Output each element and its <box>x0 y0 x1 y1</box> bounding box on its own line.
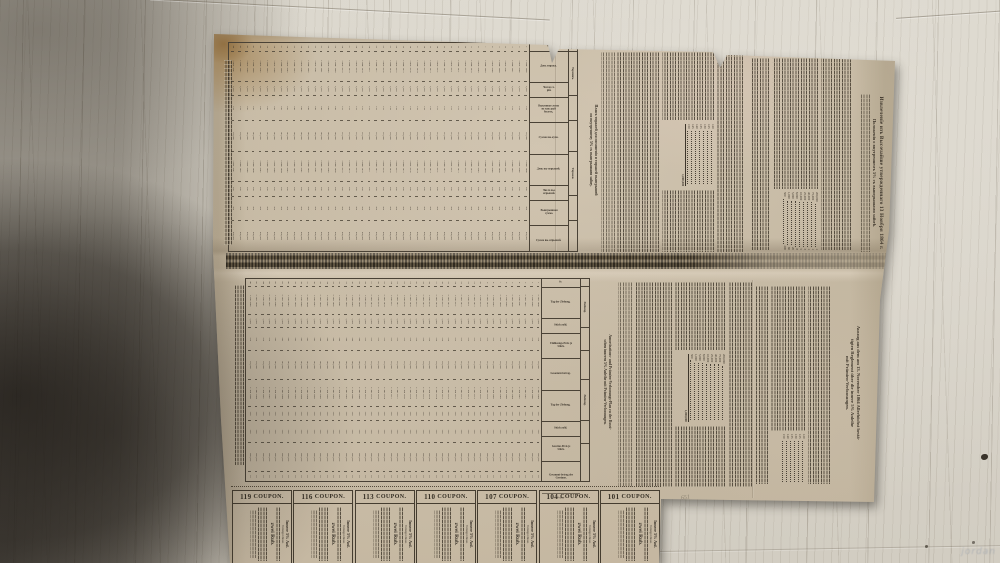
table-cell: 1,000 <box>422 82 425 97</box>
table-cell: 1. Juli 1877 <box>389 380 392 408</box>
table-cell: 500 <box>351 421 354 443</box>
table-cell: 25 <box>383 279 386 287</box>
table-cell: 1. Juli 1868 <box>505 287 508 315</box>
table-cell: 600,000 <box>460 443 463 472</box>
table-cell: 10 <box>248 472 251 481</box>
table-cell: 11 <box>472 279 475 287</box>
russian-heading-line1: Извлеченіе изъ Высочайше утвержденнаго 1… <box>878 94 885 252</box>
table-cell: 500 <box>492 421 495 443</box>
table-cell: 140,000 <box>300 121 303 152</box>
table-cell: 1. Juli 1886 <box>274 287 277 315</box>
table-cell: 1,000 <box>267 315 270 329</box>
table-cell: 500 <box>415 421 418 443</box>
table-cell: 2 Янв. 1869 <box>483 152 486 182</box>
table-column-header: № <box>530 43 568 52</box>
table-cell: 1. Juli 1872 <box>453 380 456 408</box>
table-cell: 2. Jan. 1873 <box>447 287 450 315</box>
table-cell: 1,000 <box>537 315 540 329</box>
table-cell: 130,000 <box>447 351 450 380</box>
table-cell: 1,000 <box>383 315 386 329</box>
table-cell: 1,000 <box>370 315 373 329</box>
table-cell: 1,000 <box>340 82 343 97</box>
table-column-header: Stück-zahl. <box>542 319 580 334</box>
table-cell: 37 <box>306 279 309 287</box>
table-cell: 600,000 <box>434 443 437 472</box>
table-cell: 135,000 <box>370 351 373 380</box>
table-cell: 1 Іюл. 1881 <box>313 152 316 182</box>
table-row: 381. Juli 18841,000145145,0001. Juli 188… <box>298 279 304 481</box>
table-cell: 125,000 <box>449 121 452 152</box>
table-cell: 300 <box>245 182 248 197</box>
table-cell: 135,000 <box>340 121 343 152</box>
table-cell: 1 Іюл. 1880 <box>327 152 330 182</box>
table-group-header: Терминъ. <box>569 52 577 96</box>
table-cell: 150,000 <box>261 351 264 380</box>
table-cell: 1,000 <box>498 315 501 329</box>
table-cell: 1 Іюл. 1873 <box>422 152 425 182</box>
table-cell: 1,000 <box>280 315 283 329</box>
table-row: 61. Juli 18681,000120120,0001. Juli 1868… <box>503 279 509 481</box>
coupon-label: COUPON. <box>315 494 345 500</box>
table-cell: 10 <box>524 472 527 481</box>
table-cell: 500 <box>261 421 264 443</box>
table-cell: 1,000 <box>524 82 527 97</box>
table-cell: 10 <box>325 472 328 481</box>
table-cell: 150,000 <box>255 351 258 380</box>
table-cell: 1. Juli 1868 <box>505 380 508 408</box>
table-cell: 40 <box>287 279 290 287</box>
table-cell: 500 <box>436 197 439 221</box>
table-cell: 10 <box>408 472 411 481</box>
table-cell: 1,000 <box>447 315 450 329</box>
table-cell: 140 <box>334 96 337 120</box>
table-cell: 300 <box>319 407 322 421</box>
micro-text-block <box>625 507 634 561</box>
table-cell: 2. Jan. 1881 <box>344 287 347 315</box>
table-cell: 2. Jan. 1871 <box>472 380 475 408</box>
table-cell: 2 Янв. 1874 <box>415 52 418 82</box>
table-row: 292. Jan. 18801,000140140,0002. Jan. 188… <box>355 279 361 481</box>
table-cell: 120,000 <box>498 351 501 380</box>
micro-text-block <box>773 58 819 189</box>
table-cell: 1,000 <box>409 82 412 97</box>
photo-of-bond-document: Извлеченіе изъ Высочайше утвержденнаго 1… <box>0 0 1000 563</box>
table-row: 352 Янв. 18831,000140140,0002 Янв. 18833… <box>291 43 298 251</box>
table-cell: 1 Іюл. 1878 <box>354 52 357 82</box>
table-cell: 140,000 <box>351 351 354 380</box>
table-cell: 140,000 <box>325 351 328 380</box>
prize-row: 120 <box>802 434 806 484</box>
table-cell: 2 Янв. 1878 <box>361 52 364 82</box>
table-cell: 300 <box>259 182 262 197</box>
table-cell: 600,000 <box>447 443 450 472</box>
table-cell: 29 <box>357 279 360 287</box>
russian-footnote <box>222 60 232 245</box>
table-cell: 2 Янв. 1875 <box>402 152 405 182</box>
table-cell: 300 <box>255 407 258 421</box>
table-cell: 6 <box>490 43 493 52</box>
table-cell: 1,000 <box>312 315 315 329</box>
table-cell: 3 <box>511 43 514 52</box>
table-cell: 600,000 <box>388 221 391 251</box>
table-cell: 2. Jan. 1873 <box>447 380 450 408</box>
table-cell: 120 <box>511 96 514 120</box>
table-cell: 1,000 <box>351 315 354 329</box>
table-row: 381 Іюл. 18841,000145145,0001 Іюл. 18843… <box>270 43 277 251</box>
table-cell: 300 <box>376 407 379 421</box>
table-header-spacer <box>581 351 589 380</box>
table-cell: 135,000 <box>354 121 357 152</box>
table-cell: 500 <box>252 197 255 221</box>
table-cell: 130,000 <box>428 351 431 380</box>
coupon-body-line2: Vorzeiger dieses <box>342 505 345 563</box>
table-cell: 34 <box>300 43 303 52</box>
table-cell: 600,000 <box>530 443 533 472</box>
table-cell: 600,000 <box>456 221 459 251</box>
table-cell: 120,000 <box>504 121 507 152</box>
table-cell: 500 <box>347 197 350 221</box>
table-cell: 24 <box>368 43 371 52</box>
table-cell: 125 <box>456 96 459 120</box>
table-cell: 145,000 <box>245 121 248 152</box>
table-cell: 10 <box>402 472 405 481</box>
table-cell: 500 <box>259 197 262 221</box>
table-cell: 1,000 <box>479 315 482 329</box>
table-cell: 500 <box>374 197 377 221</box>
table-cell: 7 <box>498 279 501 287</box>
table-cell: 300 <box>453 407 456 421</box>
micro-text-block <box>663 190 715 252</box>
table-cell: 2 Янв. 1871 <box>456 52 459 82</box>
table-cell: 1,000 <box>332 315 335 329</box>
table-cell: 145,000 <box>286 121 289 152</box>
table-cell: 600,000 <box>395 221 398 251</box>
prize-row: 130 <box>703 124 707 186</box>
russian-table-title-line2: по внутреннему 5% съ выигрышами займу. <box>589 48 594 252</box>
table-cell: 23 <box>374 43 377 52</box>
table-cell: 125 <box>492 328 495 350</box>
micro-text-block <box>373 510 379 558</box>
table-cell: 300 <box>364 407 367 421</box>
table-cell: 500 <box>524 197 527 221</box>
table-cell: 2 Янв. 1872 <box>443 52 446 82</box>
table-cell: 2 Янв. 1887 <box>238 52 241 82</box>
table-cell: 120,000 <box>511 351 514 380</box>
table-row: 152 Янв. 18731,000130130,0002 Янв. 18733… <box>427 43 434 251</box>
table-cell: 600,000 <box>267 443 270 472</box>
table-cell: 145,000 <box>300 351 303 380</box>
coupon-label: COUPON. <box>621 494 651 500</box>
table-cell: 10 <box>351 472 354 481</box>
table-cell: 1,000 <box>463 82 466 97</box>
table-cell: 1,000 <box>477 82 480 97</box>
table-cell: 21 <box>388 43 391 52</box>
table-cell: 135 <box>354 96 357 120</box>
table-row: 152. Jan. 18731,000130130,0002. Jan. 187… <box>445 279 451 481</box>
table-cell: 130 <box>422 96 425 120</box>
table-cell: 26 <box>376 279 379 287</box>
coupon-body-line1: Innere 5% Anl. <box>345 505 350 563</box>
table-column-header: Gewinn-Preis je Stück. <box>542 437 580 462</box>
table-cell: 500 <box>332 421 335 443</box>
table-cell: 9 <box>470 43 473 52</box>
table-cell: 135,000 <box>368 121 371 152</box>
table-row: 401 Іюл. 18851,000145145,0001 Іюл. 18853… <box>257 43 264 251</box>
table-cell: 300 <box>344 407 347 421</box>
table-column-header: День вы-игрышей. <box>530 155 568 186</box>
table-cell: 300 <box>357 407 360 421</box>
table-cell: 500 <box>306 197 309 221</box>
table-cell: 17 <box>434 279 437 287</box>
table-cell: 600,000 <box>443 221 446 251</box>
german-ladder-list: 120125130135140150 <box>772 434 806 484</box>
table-cell: 600,000 <box>524 221 527 251</box>
table-row: 172. Jan. 18741,000130130,0002. Jan. 187… <box>432 279 438 481</box>
table-cell: 1 Іюл. 1885 <box>259 152 262 182</box>
table-cell: 135 <box>340 96 343 120</box>
coupon-label: COUPON. <box>254 494 284 500</box>
table-cell: 2. Jan. 1883 <box>319 287 322 315</box>
table-cell: 120 <box>504 96 507 120</box>
table-cell: 1. Juli 1880 <box>351 287 354 315</box>
table-cell: 120,000 <box>497 121 500 152</box>
table-cell: 10 <box>428 472 431 481</box>
table-cell: 2. Jan. 1887 <box>267 287 270 315</box>
table-cell: 120 <box>517 328 520 350</box>
table-row: 112 Янв. 18711,000125125,0002 Янв. 18713… <box>454 43 461 251</box>
table-cell: 1,000 <box>245 82 248 97</box>
table-row: 252 Янв. 18781,000135135,0002 Янв. 18783… <box>359 43 366 251</box>
table-cell: 600,000 <box>453 443 456 472</box>
table-cell: 1 Іюл. 1886 <box>245 52 248 82</box>
table-cell: 140,000 <box>334 121 337 152</box>
table-cell: 600,000 <box>340 221 343 251</box>
table-cell: 2 Янв. 1876 <box>388 52 391 82</box>
table-cell: 1,000 <box>449 82 452 97</box>
table-cell: 145,000 <box>306 351 309 380</box>
table-cell: 145,000 <box>259 121 262 152</box>
prize-row: 75,000 <box>718 354 722 422</box>
table-cell: 145 <box>286 96 289 120</box>
table-cell: 300 <box>388 182 391 197</box>
prize-row: 500200 <box>783 192 787 250</box>
coupon-body-line3: zwei Rub. <box>513 505 519 563</box>
table-cell: 1 Іюл. 1868 <box>490 152 493 182</box>
table-cell: 140 <box>344 328 347 350</box>
table-cell: 130 <box>388 96 391 120</box>
table-cell: 15 <box>429 43 432 52</box>
table-cell: 300 <box>320 182 323 197</box>
coupon-body-line3: zwei Rub. <box>391 505 397 563</box>
table-cell: 135,000 <box>374 121 377 152</box>
table-header-spacer <box>569 43 577 52</box>
table-cell: 2 Янв. 1867 <box>511 52 514 82</box>
table-cell: 125 <box>477 96 480 120</box>
table-cell: 300 <box>504 182 507 197</box>
coupon-label: COUPON. <box>376 494 406 500</box>
table-cell: 150 <box>248 328 251 350</box>
table-row: 161. Juli 18731,000130130,0001. Juli 187… <box>439 279 445 481</box>
table-cell: 300 <box>530 407 533 421</box>
table-cell: 600,000 <box>248 443 251 472</box>
table-cell: 1 Іюл. 1869 <box>477 152 480 182</box>
table-cell: 1. Juli 1874 <box>428 287 431 315</box>
table-cell: 600,000 <box>477 221 480 251</box>
table-cell: 120,000 <box>483 121 486 152</box>
german-section-heading: Auszug aus dem am 13. November 1864 Alle… <box>833 280 861 486</box>
table-cell: 600,000 <box>485 443 488 472</box>
table-cell: 2. Jan. 1870 <box>485 287 488 315</box>
table-cell: 1. Juli 1867 <box>517 380 520 408</box>
prize-row: 40,000 <box>714 354 718 422</box>
table-cell: 2. Jan. 1869 <box>498 287 501 315</box>
table-cell: 130,000 <box>415 121 418 152</box>
table-cell: 1,000 <box>466 315 469 329</box>
german-heading-line3: mit Prämien-Verloosungen. <box>844 280 850 486</box>
table-cell: 1 Іюл. 1880 <box>327 52 330 82</box>
table-row: 332 Янв. 18821,000140140,0002 Янв. 18823… <box>304 43 311 251</box>
table-row: 72. Jan. 18691,000120120,0002. Jan. 1869… <box>496 279 502 481</box>
table-cell: 2. Jan. 1880 <box>357 287 360 315</box>
table-cell: 1 Іюл. 1882 <box>300 52 303 82</box>
table-cell: 600,000 <box>517 443 520 472</box>
table-cell: 1 Іюл. 1879 <box>340 52 343 82</box>
table-cell: 10 <box>344 472 347 481</box>
table-cell: 2 Янв. 1869 <box>483 52 486 82</box>
table-cell: 125,000 <box>470 121 473 152</box>
table-cell: 145 <box>300 328 303 350</box>
table-cell: 3 <box>524 279 527 287</box>
table-cell: 1 Іюл. 1868 <box>490 52 493 82</box>
table-row: 201 Іюл. 18751,000130130,0001 Іюл. 18753… <box>393 43 400 251</box>
table-row: 412 Янв. 18861,000145145,0002 Янв. 18863… <box>250 43 257 251</box>
table-cell: 24 <box>389 279 392 287</box>
table-cell: 130 <box>440 328 443 350</box>
table-cell: 10 <box>485 472 488 481</box>
table-cell: 2 Янв. 1885 <box>265 52 268 82</box>
table-row: 292 Янв. 18801,000140140,0002 Янв. 18803… <box>331 43 338 251</box>
table-cell: 5 <box>497 43 500 52</box>
table-cell: 42 <box>274 279 277 287</box>
table-cell: 135 <box>370 328 373 350</box>
table-cell: 1,000 <box>415 82 418 97</box>
table-row: 281. Juli 18791,000135135,0001. Juli 187… <box>362 279 368 481</box>
micro-text-block <box>398 507 403 561</box>
table-row: 441. Juli 18871,000150150,0001. Juli 188… <box>259 279 265 481</box>
prize-row: 10,000 <box>706 354 710 422</box>
table-cell: 600,000 <box>293 443 296 472</box>
table-cell: 150 <box>238 96 241 120</box>
table-cell: 145 <box>293 328 296 350</box>
coupon-body-line2: Vorzeiger dieses <box>526 505 529 563</box>
prize-row: 135 <box>699 124 703 186</box>
table-cell: 2. Jan. 1879 <box>370 380 373 408</box>
table-cell: 10 <box>300 472 303 481</box>
coupon-113: 113COUPON.Innere 5% Anl.Vorzeiger dieses… <box>355 490 415 563</box>
micro-text-block <box>442 507 451 561</box>
prize-row: 130 <box>794 434 798 484</box>
prize-row: 120 <box>711 124 715 186</box>
table-cell: 500 <box>306 421 309 443</box>
table-cell: 300 <box>428 407 431 421</box>
table-cell: 1,000 <box>505 315 508 329</box>
table-cell: 1 Іюл. 1875 <box>395 52 398 82</box>
table-cell: 1. Juli 1875 <box>415 380 418 408</box>
table-cell: 1 Іюл. 1883 <box>286 152 289 182</box>
table-cell: 1 Іюл. 1870 <box>463 52 466 82</box>
table-cell: 10 <box>319 472 322 481</box>
table-cell: 125,000 <box>485 351 488 380</box>
table-cell: 10 <box>370 472 373 481</box>
micro-text-block <box>618 282 632 487</box>
table-cell: 2. Jan. 1869 <box>498 380 501 408</box>
table-group-header: Тиражи. <box>569 152 577 196</box>
table-row: 172 Янв. 18741,000130130,0002 Янв. 18743… <box>413 43 420 251</box>
table-cell: 150,000 <box>267 351 270 380</box>
table-cell: 600,000 <box>357 443 360 472</box>
table-cell: 145 <box>259 96 262 120</box>
table-cell: 1,000 <box>428 315 431 329</box>
table-cell: 140 <box>351 328 354 350</box>
table-cell: 1,000 <box>287 315 290 329</box>
coupon-body-line1: Innere 5% Anl. <box>529 505 534 563</box>
table-cell: 1,000 <box>530 315 533 329</box>
table-cell: 1,000 <box>306 315 309 329</box>
prize-row: 140 <box>786 434 790 484</box>
table-cell: 10 <box>255 472 258 481</box>
table-cell: 600,000 <box>470 221 473 251</box>
table-cell: 1. Juli 1874 <box>428 380 431 408</box>
table-cell: 300 <box>248 407 251 421</box>
table-cell: 2. Jan. 1884 <box>306 287 309 315</box>
table-cell: 140 <box>300 96 303 120</box>
micro-text-block <box>643 507 648 561</box>
table-cell: 500 <box>272 197 275 221</box>
table-cell: 1,000 <box>357 315 360 329</box>
table-cell: 1 Іюл. 1875 <box>395 152 398 182</box>
table-row: 101 Іюл. 18701,000125125,0001 Іюл. 18703… <box>461 43 468 251</box>
table-cell: 135 <box>396 328 399 350</box>
table-row: 12. Jan. 18661,000120120,0002. Jan. 1866… <box>535 279 541 481</box>
prize-row: 150 <box>687 124 691 186</box>
table-cell: 600,000 <box>436 221 439 251</box>
micro-text-block <box>235 285 244 465</box>
table-cell: 300 <box>415 407 418 421</box>
table-row: 81 Іюл. 18691,000125125,0001 Іюл. 186930… <box>475 43 482 251</box>
table-cell: 10 <box>505 472 508 481</box>
table-cell: 2 Янв. 1866 <box>524 152 527 182</box>
coupon-110: 110COUPON.Innere 5% Anl.Vorzeiger dieses… <box>416 490 476 563</box>
table-cell: 2. Jan. 1871 <box>472 287 475 315</box>
table-cell: 1 Іюл. 1866 <box>518 152 521 182</box>
coupon-body-line3: zwei Rub. <box>575 505 581 563</box>
micro-text-block <box>728 282 752 487</box>
table-cell: 500 <box>511 197 514 221</box>
table-cell: 145,000 <box>279 121 282 152</box>
coupon-number: 110 <box>424 493 435 501</box>
table-row: 252. Jan. 18781,000135135,0002. Jan. 187… <box>381 279 387 481</box>
table-cell: 140 <box>332 328 335 350</box>
table-cell: 145 <box>252 96 255 120</box>
table-cell: 600,000 <box>280 443 283 472</box>
table-cell: 500 <box>354 197 357 221</box>
coupon-body-line3: zwei Rub. <box>636 505 642 563</box>
table-cell: 600,000 <box>325 443 328 472</box>
table-cell: 140,000 <box>338 351 341 380</box>
table-row: 32. Jan. 18671,000120120,0002. Jan. 1867… <box>522 279 528 481</box>
table-cell: 2. Jan. 1876 <box>408 287 411 315</box>
table-cell: 600,000 <box>472 443 475 472</box>
